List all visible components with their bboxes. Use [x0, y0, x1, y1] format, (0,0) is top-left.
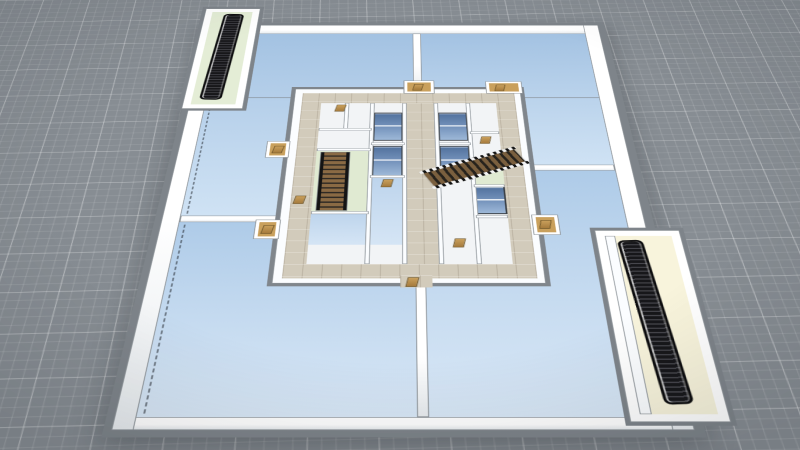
core-wall [476, 215, 508, 218]
outer-wall-top [206, 25, 600, 34]
core-wall [371, 142, 405, 145]
blue-room [308, 213, 369, 245]
core-wall [311, 211, 369, 214]
core-wall [474, 184, 505, 187]
elevator-glass[interactable] [474, 186, 508, 214]
core-wall [319, 128, 372, 130]
core-wall [317, 148, 371, 151]
door[interactable] [494, 85, 505, 91]
viewport-3d[interactable] [0, 0, 800, 450]
ground-plane [0, 0, 800, 450]
elevator-glass[interactable] [373, 113, 403, 141]
elevator-glass[interactable] [372, 146, 403, 176]
staircase[interactable] [316, 152, 349, 210]
core-wall [470, 131, 499, 134]
core-wall [370, 175, 405, 178]
door[interactable] [539, 220, 551, 229]
elevator-glass[interactable] [438, 113, 469, 141]
door[interactable] [412, 84, 424, 90]
door[interactable] [480, 136, 492, 143]
divider-wall-right [530, 165, 615, 171]
service-core[interactable] [271, 89, 546, 284]
outer-wall-bottom [111, 417, 695, 430]
core-wall [439, 142, 471, 145]
escalator[interactable] [199, 14, 244, 100]
door[interactable] [453, 238, 466, 247]
core-wall [402, 103, 407, 264]
